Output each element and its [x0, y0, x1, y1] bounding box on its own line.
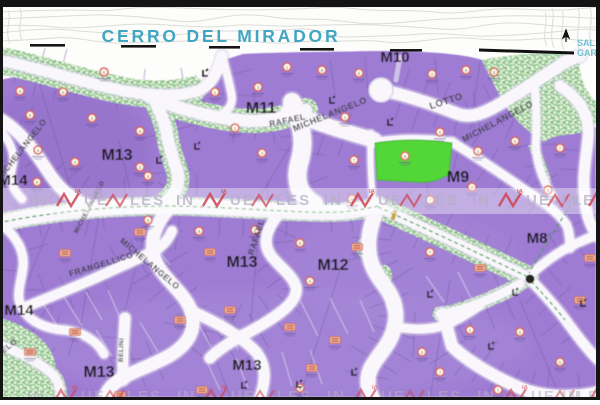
- svg-text:M12: M12: [317, 257, 348, 274]
- svg-text:UE: UE: [526, 192, 551, 209]
- svg-text:LES: LES: [130, 192, 165, 209]
- svg-text:M14: M14: [4, 302, 34, 319]
- svg-text:GAR: GAR: [577, 48, 598, 58]
- svg-text:IN: IN: [324, 192, 343, 209]
- svg-text:IA: IA: [72, 385, 79, 391]
- svg-text:LES: LES: [424, 192, 459, 209]
- svg-text:IN: IN: [562, 192, 581, 209]
- svg-text:M8: M8: [527, 230, 548, 247]
- svg-text:IA: IA: [75, 189, 82, 195]
- svg-text:IA: IA: [372, 385, 379, 391]
- svg-text:M13: M13: [101, 147, 132, 164]
- svg-text:LES: LES: [276, 192, 311, 209]
- svg-text:M9: M9: [447, 169, 469, 186]
- svg-text:M11: M11: [246, 100, 276, 117]
- svg-text:UE: UE: [230, 192, 255, 209]
- svg-text:M13: M13: [226, 254, 257, 271]
- svg-text:IA: IA: [517, 189, 524, 195]
- svg-text:SAL: SAL: [577, 38, 596, 48]
- svg-text:UE: UE: [84, 192, 109, 209]
- svg-text:M13: M13: [232, 357, 261, 374]
- svg-text:IN: IN: [30, 192, 49, 209]
- svg-text:IA: IA: [221, 189, 228, 195]
- svg-text:CERRO DEL MIRADOR: CERRO DEL MIRADOR: [102, 26, 341, 46]
- svg-text:IA: IA: [369, 189, 376, 195]
- svg-text:IN: IN: [472, 192, 491, 209]
- svg-text:UE: UE: [378, 192, 403, 209]
- svg-text:IA: IA: [222, 385, 229, 391]
- svg-text:BELINI: BELINI: [118, 338, 126, 363]
- svg-text:M13: M13: [83, 364, 114, 381]
- svg-text:IA: IA: [522, 385, 529, 391]
- svg-text:IN: IN: [176, 192, 195, 209]
